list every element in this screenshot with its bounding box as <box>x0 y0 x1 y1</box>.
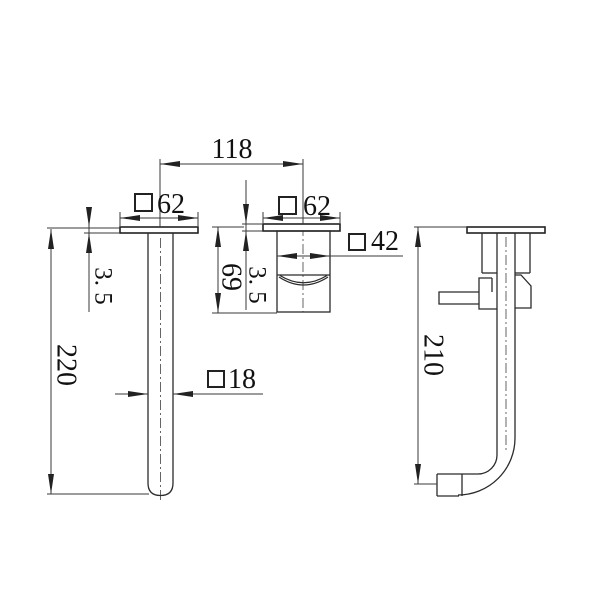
dim-18-label: 18 <box>228 364 256 395</box>
valve-flange <box>263 224 340 231</box>
dim-62-mid-label: 62 <box>303 191 331 222</box>
dim-220-label: 220 <box>51 344 82 386</box>
drawing-sheet: 118 62 62 42 69 <box>0 0 600 600</box>
square-symbol-icon <box>279 197 296 214</box>
square-symbol-icon <box>208 371 224 387</box>
dim-42-label: 42 <box>371 226 399 257</box>
technical-drawing: 118 62 62 42 69 <box>0 0 600 600</box>
side-flange <box>467 227 545 233</box>
dim-3-5-left-label: 3. 5 <box>90 267 117 305</box>
square-symbol-icon <box>349 234 365 250</box>
handle-side-block <box>515 275 531 308</box>
dim-spout-flange-width: 62 <box>120 189 198 226</box>
dim-spout-tube-width: 18 <box>115 364 263 397</box>
spout-bend-inner <box>478 455 497 474</box>
square-symbol-icon <box>135 194 152 211</box>
dim-210-label: 210 <box>418 334 449 376</box>
dim-valve-flange-thickness: 3. 5 <box>242 180 271 310</box>
spout-flange <box>120 227 198 233</box>
dim-118-label: 118 <box>212 134 253 165</box>
valve-front-view <box>263 224 340 312</box>
handle-mount-block <box>479 278 497 309</box>
dim-69-label: 69 <box>216 263 247 291</box>
dim-spout-flange-thickness: 3. 5 <box>84 207 120 312</box>
side-view <box>437 227 545 496</box>
spout-front-view <box>120 227 198 502</box>
dim-3-5-mid-label: 3. 5 <box>244 266 271 304</box>
dim-valve-flange-width: 62 <box>263 191 340 223</box>
dim-side-overall-height: 210 <box>414 227 467 484</box>
handle-lever <box>439 292 479 304</box>
dim-62-left-label: 62 <box>157 189 185 220</box>
valve-body <box>277 231 330 312</box>
spout-bend-outer <box>458 438 515 495</box>
